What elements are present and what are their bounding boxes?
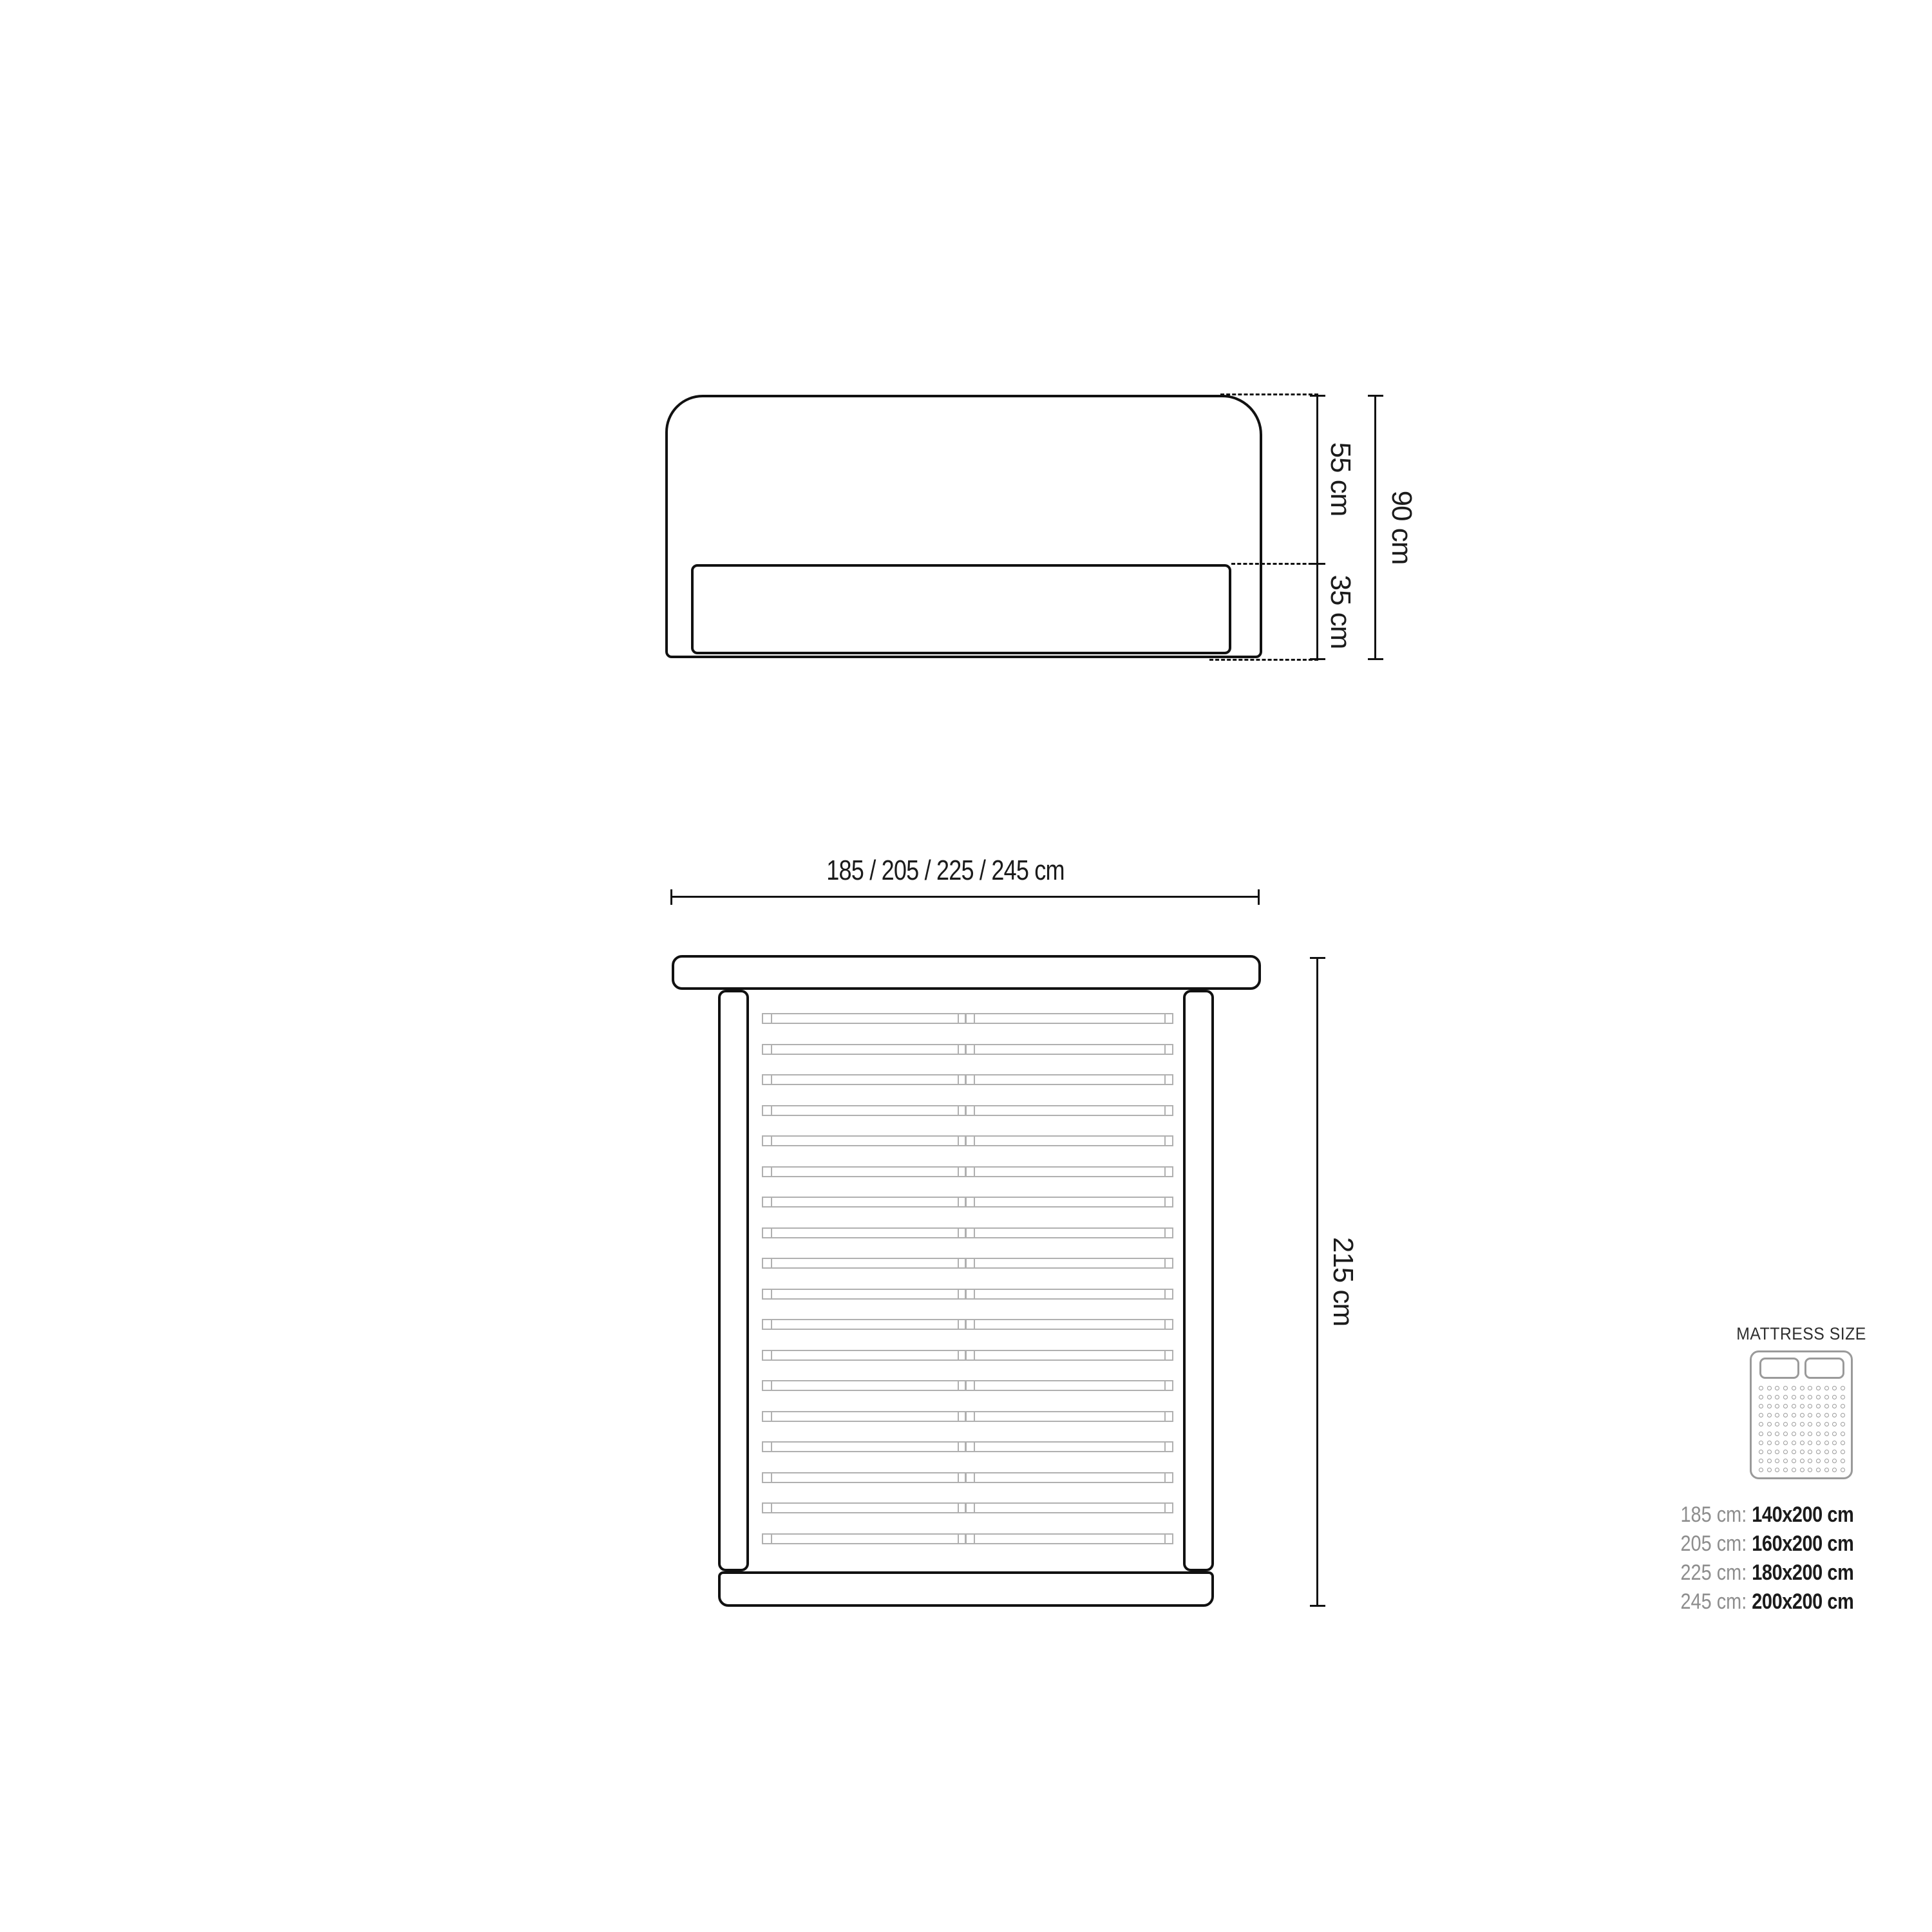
mattress-dot — [1759, 1413, 1763, 1417]
mattress-dot — [1816, 1432, 1821, 1436]
mattress-dot — [1800, 1468, 1804, 1472]
mattress-dot — [1824, 1422, 1829, 1426]
mattress-dot — [1775, 1468, 1779, 1472]
pillow-icon — [1759, 1358, 1799, 1379]
frame-size-label: 205 cm: — [1680, 1531, 1752, 1556]
mattress-dot — [1767, 1413, 1772, 1417]
mattress-dot — [1832, 1422, 1837, 1426]
mattress-dot — [1816, 1404, 1821, 1408]
slat — [762, 1319, 1173, 1330]
mattress-dot — [1792, 1450, 1796, 1454]
mattress-dot — [1808, 1422, 1812, 1426]
mattress-dot — [1783, 1386, 1788, 1390]
mattress-dot — [1800, 1422, 1804, 1426]
mattress-dot — [1832, 1459, 1837, 1463]
dim-label-90cm: 90 cm — [1385, 491, 1417, 565]
mattress-dot — [1808, 1441, 1812, 1445]
mattress-dot — [1783, 1450, 1788, 1454]
mattress-dot — [1824, 1395, 1829, 1399]
pillow-icon — [1804, 1358, 1844, 1379]
tick — [1310, 957, 1325, 959]
side-rail-right — [1183, 990, 1214, 1571]
mattress-dot — [1775, 1422, 1779, 1426]
mattress-dot — [1759, 1422, 1763, 1426]
diagram-canvas: 55 cm 35 cm 90 cm 185 / 205 / 225 / 245 … — [0, 0, 1932, 1932]
mattress-dot — [1824, 1450, 1829, 1454]
mattress-dot — [1824, 1441, 1829, 1445]
slat — [762, 1441, 1173, 1452]
mattress-dot — [1800, 1432, 1804, 1436]
mattress-dot — [1775, 1386, 1779, 1390]
dim-label-215cm: 215 cm — [1327, 1237, 1359, 1326]
slat — [762, 1074, 1173, 1085]
dim-label-width-options: 185 / 205 / 225 / 245 cm — [826, 857, 1064, 885]
mattress-size-value: 200x200 cm — [1752, 1589, 1853, 1614]
mattress-dot — [1816, 1386, 1821, 1390]
frame-size-label: 225 cm: — [1680, 1560, 1752, 1585]
size-row: 205 cm: 160x200 cm — [1680, 1529, 1853, 1558]
mattress-dot — [1841, 1468, 1845, 1472]
mattress-dot — [1832, 1395, 1837, 1399]
mattress-dot — [1767, 1441, 1772, 1445]
mattress-dot — [1800, 1413, 1804, 1417]
mattress-dot — [1816, 1459, 1821, 1463]
slat — [762, 1289, 1173, 1300]
mattress-dot — [1808, 1386, 1812, 1390]
mattress-dot — [1767, 1404, 1772, 1408]
mattress-dot — [1824, 1404, 1829, 1408]
slat — [762, 1044, 1173, 1055]
tick — [1368, 395, 1383, 397]
mattress-dot — [1775, 1395, 1779, 1399]
size-row: 225 cm: 180x200 cm — [1680, 1558, 1853, 1587]
mattress-dot — [1832, 1386, 1837, 1390]
mattress-dot — [1824, 1413, 1829, 1417]
bed-base-side — [691, 564, 1231, 654]
tick — [1310, 563, 1325, 565]
mattress-dot — [1783, 1404, 1788, 1408]
tick — [1310, 1605, 1325, 1607]
mattress-dot — [1832, 1450, 1837, 1454]
slat — [762, 1105, 1173, 1116]
mattress-dot-grid — [1759, 1386, 1845, 1472]
mattress-dot — [1832, 1432, 1837, 1436]
tick — [1258, 889, 1260, 905]
slat — [762, 1472, 1173, 1483]
mattress-dot — [1767, 1386, 1772, 1390]
mattress-dot — [1767, 1432, 1772, 1436]
mattress-dot — [1816, 1441, 1821, 1445]
mattress-dot — [1832, 1413, 1837, 1417]
mattress-dot — [1792, 1386, 1796, 1390]
mattress-dot — [1783, 1413, 1788, 1417]
slat — [762, 1166, 1173, 1177]
side-rail-left — [718, 990, 749, 1571]
mattress-dot — [1759, 1441, 1763, 1445]
mattress-dot — [1841, 1413, 1845, 1417]
mattress-dot — [1841, 1404, 1845, 1408]
mattress-size-value: 180x200 cm — [1752, 1560, 1853, 1585]
mattress-dot — [1792, 1404, 1796, 1408]
mattress-dot — [1816, 1395, 1821, 1399]
headboard-plan — [672, 955, 1261, 990]
mattress-dot — [1808, 1404, 1812, 1408]
mattress-dot — [1783, 1422, 1788, 1426]
slat — [762, 1197, 1173, 1207]
mattress-dot — [1808, 1450, 1812, 1454]
frame-size-label: 185 cm: — [1680, 1502, 1752, 1527]
mattress-size-value: 160x200 cm — [1752, 1531, 1853, 1556]
slat — [762, 1533, 1173, 1544]
mattress-dot — [1816, 1413, 1821, 1417]
mattress-dot — [1824, 1386, 1829, 1390]
mattress-dot — [1767, 1450, 1772, 1454]
mattress-dot — [1808, 1468, 1812, 1472]
mattress-dot — [1759, 1468, 1763, 1472]
mattress-dot — [1800, 1386, 1804, 1390]
mattress-dot — [1816, 1422, 1821, 1426]
tick — [1310, 395, 1325, 397]
mattress-dot — [1767, 1395, 1772, 1399]
mattress-dot — [1759, 1404, 1763, 1408]
mattress-dot — [1808, 1395, 1812, 1399]
mattress-dot — [1841, 1386, 1845, 1390]
frame-size-label: 245 cm: — [1680, 1589, 1752, 1614]
mattress-dot — [1775, 1450, 1779, 1454]
mattress-dot — [1759, 1432, 1763, 1436]
slat — [762, 1502, 1173, 1513]
mattress-dot — [1816, 1450, 1821, 1454]
mattress-dot — [1832, 1468, 1837, 1472]
mattress-dot — [1767, 1422, 1772, 1426]
slat — [762, 1350, 1173, 1361]
legend-title: MATTRESS SIZE — [1736, 1324, 1866, 1344]
mattress-dot — [1783, 1395, 1788, 1399]
slat — [762, 1227, 1173, 1238]
extension-line-middle — [1231, 563, 1318, 565]
mattress-dot — [1800, 1404, 1804, 1408]
mattress-dot — [1792, 1459, 1796, 1463]
tick — [670, 889, 672, 905]
mattress-dot — [1841, 1441, 1845, 1445]
mattress-dot — [1800, 1459, 1804, 1463]
mattress-dot — [1841, 1459, 1845, 1463]
mattress-dot — [1841, 1450, 1845, 1454]
mattress-dot — [1783, 1432, 1788, 1436]
tick — [1368, 658, 1383, 660]
mattress-dot — [1841, 1395, 1845, 1399]
extension-line-top — [1220, 393, 1318, 395]
mattress-dot — [1792, 1441, 1796, 1445]
extension-line-bottom — [1209, 659, 1318, 661]
dimension-line-90 — [1374, 395, 1376, 660]
mattress-dot — [1783, 1441, 1788, 1445]
mattress-dot — [1792, 1468, 1796, 1472]
size-row: 185 cm: 140x200 cm — [1680, 1501, 1853, 1529]
slat — [762, 1411, 1173, 1422]
dim-label-55cm: 55 cm — [1324, 442, 1356, 516]
mattress-dot — [1783, 1459, 1788, 1463]
mattress-dot — [1841, 1432, 1845, 1436]
mattress-dot — [1783, 1468, 1788, 1472]
mattress-dot — [1792, 1395, 1796, 1399]
mattress-dot — [1775, 1459, 1779, 1463]
mattress-top-view-icon — [1750, 1350, 1853, 1479]
mattress-dot — [1800, 1441, 1804, 1445]
mattress-dot — [1767, 1468, 1772, 1472]
mattress-size-value: 140x200 cm — [1752, 1502, 1853, 1527]
mattress-dot — [1775, 1441, 1779, 1445]
mattress-dot — [1792, 1422, 1796, 1426]
mattress-dot — [1767, 1459, 1772, 1463]
mattress-dot — [1824, 1432, 1829, 1436]
mattress-dot — [1800, 1450, 1804, 1454]
slat — [762, 1380, 1173, 1391]
mattress-dot — [1775, 1404, 1779, 1408]
mattress-dot — [1792, 1432, 1796, 1436]
size-row: 245 cm: 200x200 cm — [1680, 1587, 1853, 1616]
mattress-dot — [1775, 1432, 1779, 1436]
mattress-dot — [1808, 1459, 1812, 1463]
mattress-dot — [1832, 1404, 1837, 1408]
dimension-line-55-35 — [1316, 395, 1318, 660]
slat-area — [762, 1013, 1173, 1544]
mattress-dot — [1759, 1395, 1763, 1399]
mattress-dot — [1816, 1468, 1821, 1472]
mattress-dot — [1824, 1459, 1829, 1463]
mattress-dot — [1792, 1413, 1796, 1417]
footboard-plan — [718, 1571, 1214, 1607]
mattress-dot — [1775, 1413, 1779, 1417]
slat — [762, 1135, 1173, 1146]
mattress-dot — [1808, 1432, 1812, 1436]
mattress-dot — [1808, 1413, 1812, 1417]
mattress-dot — [1800, 1395, 1804, 1399]
mattress-dot — [1759, 1450, 1763, 1454]
mattress-dot — [1759, 1386, 1763, 1390]
dimension-line-width — [670, 896, 1260, 898]
slat — [762, 1013, 1173, 1024]
dimension-line-215 — [1316, 957, 1318, 1607]
slat — [762, 1258, 1173, 1269]
mattress-dot — [1824, 1468, 1829, 1472]
mattress-dot — [1832, 1441, 1837, 1445]
dim-label-35cm: 35 cm — [1324, 575, 1356, 649]
mattress-dot — [1759, 1459, 1763, 1463]
mattress-dot — [1841, 1422, 1845, 1426]
tick — [1310, 658, 1325, 660]
